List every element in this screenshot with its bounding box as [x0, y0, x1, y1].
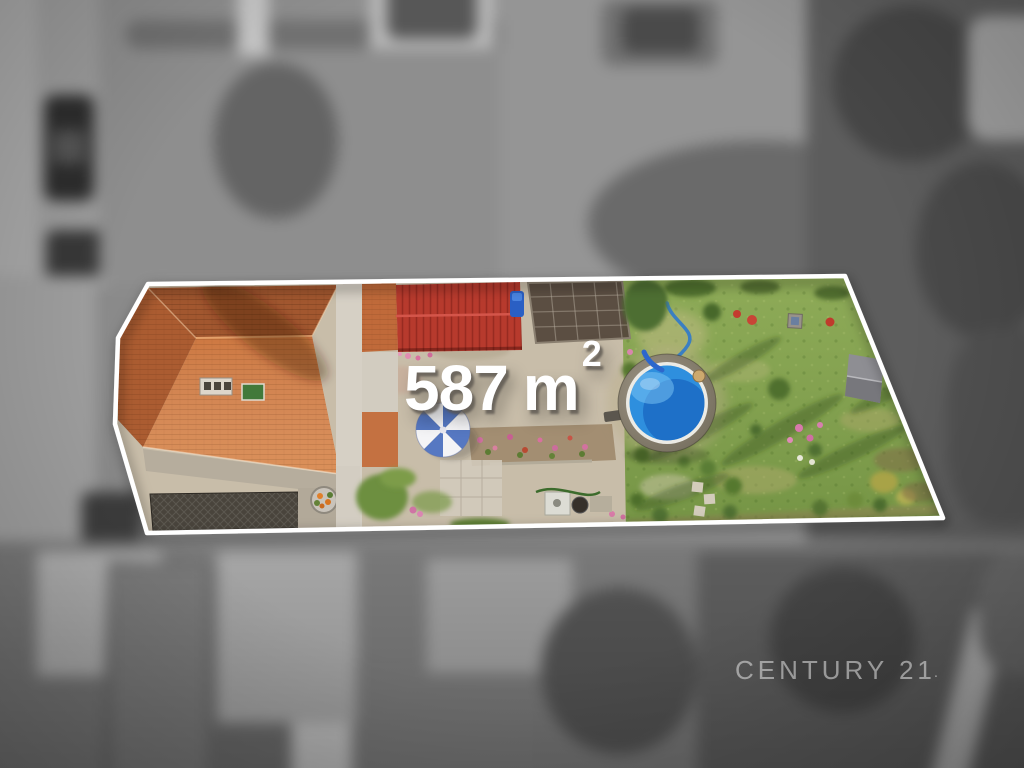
blue-barrel — [510, 291, 524, 317]
area-label: 587m2 — [404, 356, 601, 420]
area-value: 587 — [404, 352, 508, 424]
rose-bed — [468, 424, 616, 466]
pool-step — [693, 370, 705, 382]
chimney-pot — [204, 382, 211, 390]
century21-watermark: CENTURY 21. — [735, 657, 940, 683]
watermark-brand: CENTURY 21 — [735, 655, 936, 685]
carport-mesh — [150, 492, 299, 531]
skylight — [242, 384, 264, 400]
barn-eave-shadow — [398, 348, 522, 350]
annex-roof-low — [362, 412, 398, 467]
annex-roof-tiles — [362, 283, 398, 352]
aerial-property-photo: 587m2 CENTURY 21. — [0, 0, 1024, 768]
tree-by-pergola — [623, 279, 667, 331]
chimney-pot — [224, 382, 231, 390]
chimney-pot — [214, 382, 221, 390]
annex-wall-mid — [362, 352, 398, 412]
planter — [311, 487, 337, 513]
house-main — [118, 265, 340, 474]
barn-corrugation — [396, 282, 522, 352]
barn — [396, 282, 522, 361]
area-unit: m — [523, 352, 579, 424]
watermark-dot: . — [934, 664, 938, 681]
area-superscript: 2 — [582, 333, 601, 374]
